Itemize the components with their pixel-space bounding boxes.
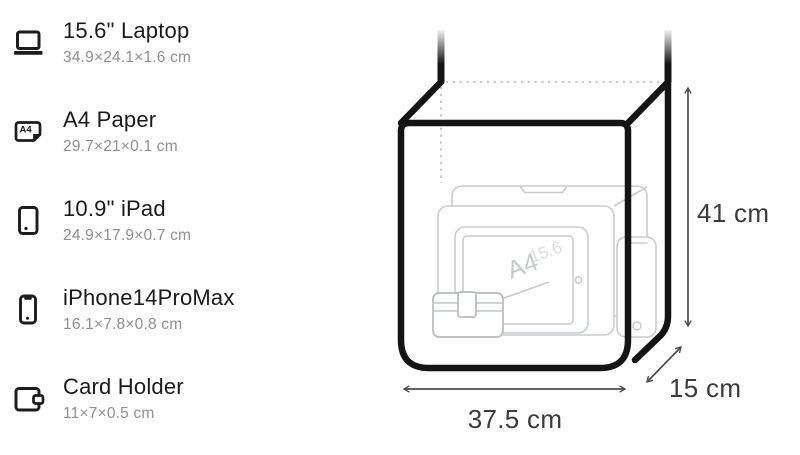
bag-size-diagram: 15.6 A4: [375, 0, 800, 455]
item-title: Card Holder: [63, 374, 184, 400]
a4-paper-icon: A4: [10, 114, 46, 150]
bag-top-right-edge: [628, 82, 668, 123]
bag-contents-sketch: 15.6 A4: [433, 186, 656, 337]
phone-icon: [10, 292, 46, 328]
item-title: 10.9" iPad: [63, 196, 191, 222]
list-item-a4-paper: A4 A4 Paper 29.7×21×0.1 cm: [10, 107, 235, 157]
item-comparison-list: 15.6" Laptop 34.9×24.1×1.6 cm A4 A4 Pape…: [10, 18, 235, 424]
item-dimensions: 24.9×17.9×0.7 cm: [63, 227, 191, 246]
item-dimensions: 11×7×0.5 cm: [63, 405, 184, 424]
height-dimension-label: 41 cm: [697, 198, 769, 228]
item-title: 15.6" Laptop: [63, 18, 191, 44]
sketch-phone: [617, 237, 656, 337]
list-item-laptop: 15.6" Laptop 34.9×24.1×1.6 cm: [10, 18, 235, 68]
depth-dimension-label: 15 cm: [669, 373, 741, 403]
wallet-icon: [10, 381, 46, 417]
item-title: iPhone14ProMax: [63, 285, 235, 311]
laptop-icon: [10, 25, 46, 61]
list-item-iphone: iPhone14ProMax 16.1×7.8×0.8 cm: [10, 285, 235, 335]
item-dimensions: 16.1×7.8×0.8 cm: [63, 316, 235, 335]
item-title: A4 Paper: [63, 107, 178, 133]
width-dimension-label: 37.5 cm: [468, 404, 563, 434]
a4-icon-label: A4: [20, 124, 33, 135]
item-dimensions: 34.9×24.1×1.6 cm: [63, 49, 191, 68]
bag-top-left-edge: [401, 82, 441, 123]
item-dimensions: 29.7×21×0.1 cm: [63, 138, 178, 157]
list-item-ipad: 10.9" iPad 24.9×17.9×0.7 cm: [10, 196, 235, 246]
list-item-card-holder: Card Holder 11×7×0.5 cm: [10, 374, 235, 424]
sketch-card-holder: [433, 292, 503, 337]
tablet-icon: [10, 203, 46, 239]
